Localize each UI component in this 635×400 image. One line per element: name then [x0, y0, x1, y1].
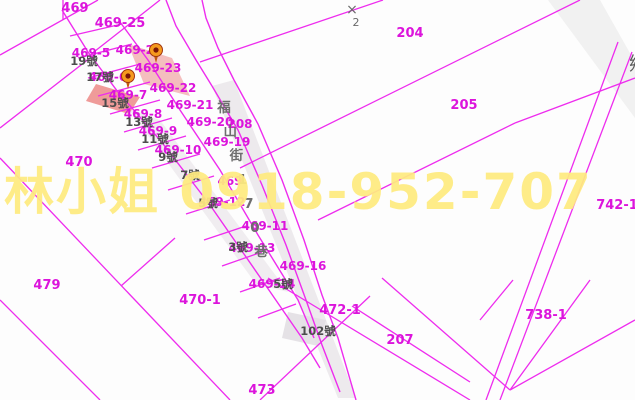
- survey-x2-symbol-sub: 2: [353, 16, 360, 29]
- road-band-topright: [548, 0, 635, 118]
- parcel-boundary-line: [121, 238, 175, 286]
- house-number-label: 13號: [125, 115, 153, 129]
- parcel-number-label: 738-1: [525, 308, 567, 323]
- street-name-label: 山: [223, 124, 237, 140]
- parcel-boundary-line: [510, 280, 590, 390]
- house-number-label: 9號: [158, 150, 178, 164]
- parcel-number-label: 742-1: [596, 198, 635, 213]
- parcel-number-label: 469: [61, 1, 88, 16]
- house-number-label: 5號: [198, 196, 218, 210]
- house-number-label: 7號: [180, 168, 200, 182]
- street-upper-right-edge: [202, 0, 234, 80]
- street-name-label: 0: [250, 220, 259, 236]
- parcel-boundary-line: [0, 300, 100, 400]
- cadastral-map-viewport[interactable]: 469469-25469-5469-24469-23469-6469-7469-…: [0, 0, 635, 400]
- parcel-number-label: 204: [396, 26, 423, 41]
- parcel-boundary-line: [510, 320, 635, 390]
- parcel-boundary-line: [486, 42, 618, 400]
- street-name-label: 街: [229, 147, 244, 164]
- parcel-boundary-line: [515, 78, 635, 123]
- parcel-number-label: 469-25: [95, 16, 146, 31]
- parcel-boundary-line: [0, 58, 90, 128]
- parcel-number-label: 470: [65, 155, 92, 170]
- house-number-label: 11號: [141, 132, 169, 146]
- parcel-number-label: 469-22: [150, 81, 197, 95]
- parcel-number-label: 479: [33, 278, 60, 293]
- street-name-label: 福: [216, 99, 231, 116]
- parcel-number-label: 207: [386, 333, 413, 348]
- house-number-label: 3號: [228, 240, 248, 254]
- parcel-number-label: 469-11: [242, 219, 289, 233]
- parcel-number-label: 205: [450, 98, 477, 113]
- parcel-number-label: 469-23: [135, 61, 182, 75]
- house-number-label: 5號: [273, 277, 293, 291]
- cadastral-map-canvas[interactable]: 469469-25469-5469-24469-23469-6469-7469-…: [0, 0, 635, 400]
- house-number-label: 102號: [300, 324, 336, 338]
- house-number-label: 19號: [70, 54, 98, 68]
- house-number-label: 15號: [101, 96, 129, 110]
- street-name-label: 1: [238, 172, 247, 188]
- street-name-label: 巷: [253, 243, 268, 260]
- parcel-number-label: 473: [248, 383, 275, 398]
- parcel-boundary-line: [318, 123, 515, 220]
- parcel-number-label: 469-16: [280, 259, 327, 273]
- edge-clipped-label: 鄉: [629, 53, 635, 75]
- parcel-number-label: 469-21: [167, 98, 214, 112]
- parcel-number-label: 472-1: [319, 303, 361, 318]
- parcel-number-label: 470-1: [179, 293, 221, 308]
- house-number-label: 17號: [86, 70, 114, 84]
- parcel-boundary-line: [480, 280, 513, 320]
- street-name-label: 7: [244, 196, 253, 212]
